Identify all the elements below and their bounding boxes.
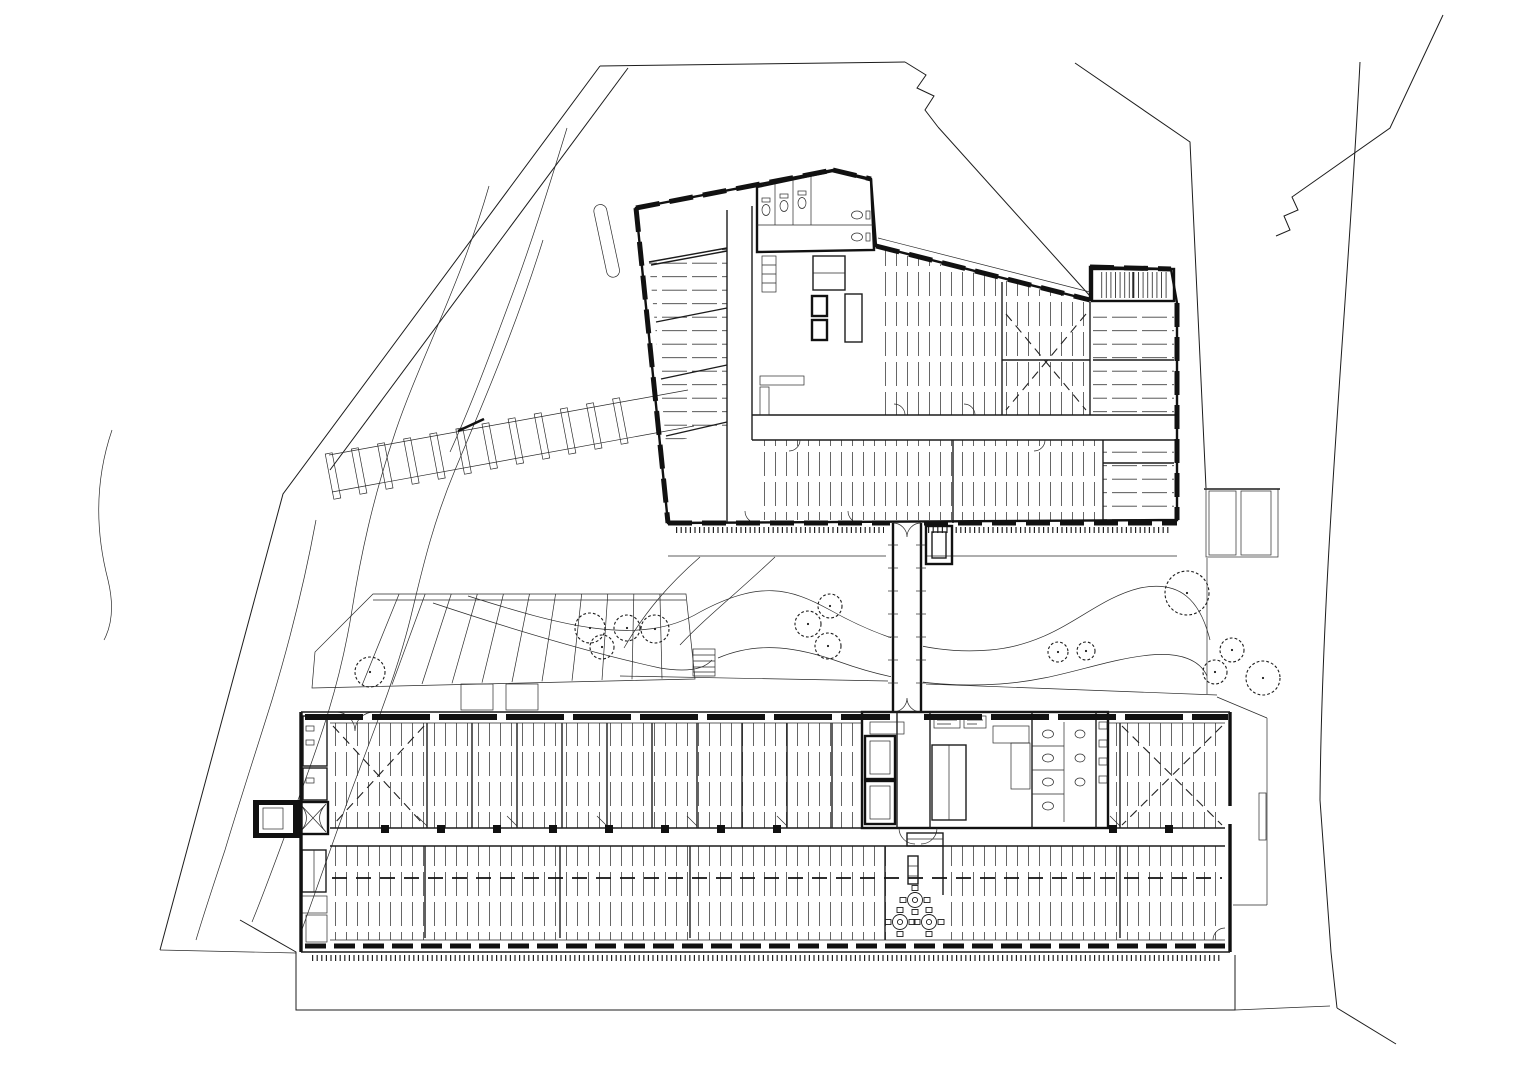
structural-column: [493, 825, 501, 833]
annex-wc2: [303, 768, 327, 800]
north-boundary-notch: [905, 62, 938, 127]
elevator: [865, 781, 895, 824]
office-rooms-south-a: [755, 440, 953, 520]
north-building: [636, 170, 1177, 530]
contour-line: [450, 128, 567, 452]
tree-trunk: [369, 671, 371, 673]
structural-column: [773, 825, 781, 833]
floor-plan-canvas: [0, 0, 1527, 1080]
shaft-hatched: [300, 896, 327, 913]
north-room-row-east: [1108, 723, 1225, 828]
roof-stair-block: [1092, 269, 1174, 301]
annex-wc: [303, 716, 327, 766]
garden-panel-lines: [362, 594, 662, 685]
parking-stall: [586, 403, 601, 449]
parking-stall: [430, 433, 445, 479]
south-east-corner: [1337, 1008, 1396, 1044]
structural-column: [1109, 825, 1117, 833]
north-room-row: [330, 723, 862, 828]
south-west-edge: [160, 950, 296, 953]
tree-trunk: [1186, 592, 1188, 594]
parking-stall: [325, 453, 340, 499]
service-core: [862, 712, 1108, 844]
planter-strip: [593, 203, 621, 278]
footpath-curve: [468, 586, 1210, 651]
footpath-curve: [433, 603, 712, 670]
tree-trunk: [1214, 671, 1216, 673]
south-sidewalk-extension: [1235, 1006, 1330, 1010]
garden-panel-line: [572, 594, 582, 681]
structural-column: [549, 825, 557, 833]
garden-panel-line: [512, 594, 530, 682]
elevator: [865, 736, 895, 779]
office-rooms-south-c: [1103, 440, 1174, 520]
office-rooms-south-b: [953, 440, 1103, 520]
shaft-hatched: [845, 294, 862, 342]
tree-trunk: [1085, 650, 1087, 652]
garden-panel-line: [482, 594, 503, 683]
tree-trunk: [1057, 651, 1059, 653]
tree-trunk: [1262, 677, 1264, 679]
garden-band: [312, 594, 695, 688]
bench: [1259, 793, 1266, 840]
plan-sheet: [0, 0, 1527, 1080]
reception-desk: [760, 376, 804, 415]
parking-stalls: [325, 398, 628, 500]
core-double-door: [899, 828, 937, 844]
structural-column: [437, 825, 445, 833]
bridge-shaft: [926, 526, 952, 564]
garden-stair: [693, 649, 715, 676]
contour-line: [196, 520, 316, 940]
north-boundary: [600, 62, 905, 66]
east-door-recess: [1225, 806, 1233, 824]
structural-column: [381, 825, 389, 833]
parking-stall: [613, 398, 628, 444]
main-corridor-walls: [752, 415, 1177, 440]
east-boundary: [1320, 62, 1360, 1008]
shaft-hatched: [993, 726, 1029, 743]
structural-column: [661, 825, 669, 833]
garden-panel-line: [452, 594, 477, 683]
garden-panel-line: [362, 594, 399, 685]
contour-hairpin: [99, 430, 112, 640]
courtyard-landscape: [312, 489, 1280, 905]
link-bridge: [888, 523, 952, 712]
structural-column: [1165, 825, 1173, 833]
footpath-curve: [624, 557, 775, 648]
bike-rack: [461, 684, 493, 710]
office-rooms-west: [649, 248, 727, 443]
structural-column: [605, 825, 613, 833]
tree-trunk: [589, 627, 591, 629]
garden-panel-line: [392, 594, 425, 685]
west-annex: [253, 716, 328, 942]
shaft-hatched: [1011, 743, 1030, 789]
garden-panel-line: [632, 594, 634, 679]
structural-column: [717, 825, 725, 833]
tree-trunk: [654, 628, 656, 630]
parking-stall: [534, 413, 549, 459]
tree-trunk: [1231, 649, 1233, 651]
south-building: [253, 712, 1233, 958]
tree-trunk: [829, 605, 831, 607]
elevator: [812, 296, 827, 316]
tree-trunk: [626, 627, 628, 629]
tree-trunk: [827, 645, 829, 647]
east-deck: [1204, 489, 1280, 557]
shaft-hatched: [306, 915, 327, 942]
south-room-row: [330, 846, 1225, 940]
contour-line: [300, 240, 543, 935]
garden-panel-line: [602, 594, 608, 680]
parking-stall: [560, 408, 575, 454]
elevator: [812, 320, 827, 340]
east-boundary-notch: [1276, 15, 1443, 236]
tree-trunk: [807, 623, 809, 625]
shaft-hatched: [870, 722, 904, 734]
west-road-inner-edge: [330, 68, 628, 470]
bridge-floor: [891, 523, 923, 712]
west-corridor-walls: [727, 206, 752, 523]
window-band-stair: [1090, 267, 1171, 269]
tree-trunk: [601, 646, 603, 648]
stair-core: [762, 256, 862, 342]
garden-panel-line: [660, 594, 662, 679]
bike-rack: [506, 684, 538, 710]
